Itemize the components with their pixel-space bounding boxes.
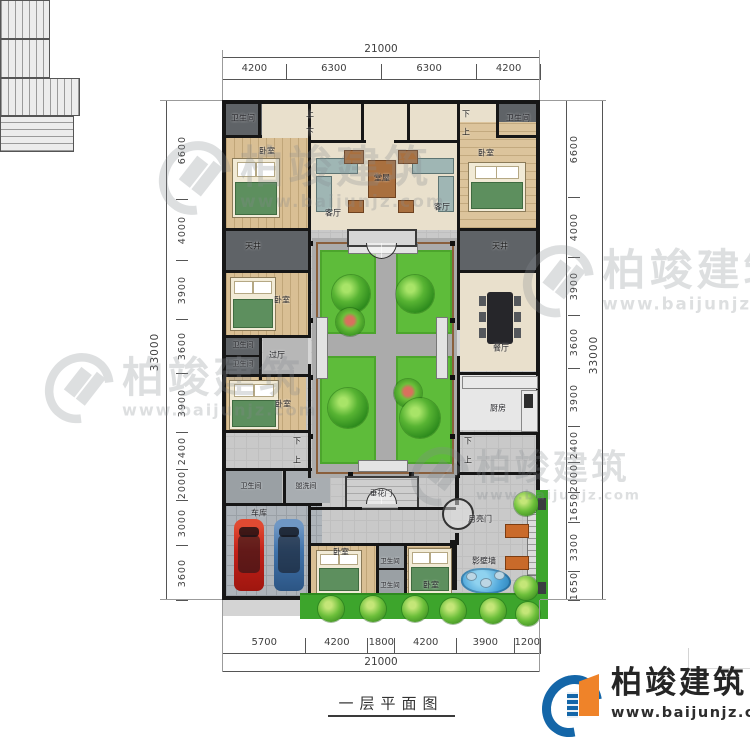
chair-icon: [514, 312, 521, 322]
watermark: 柏竣建筑 www.baijunjz.com: [412, 446, 641, 507]
column-icon: [450, 241, 455, 246]
car-red-icon: [234, 519, 264, 591]
chair-icon: [479, 328, 486, 338]
extension-line: [539, 600, 540, 672]
room-label-wc-bottom-left: 卫生间: [241, 481, 262, 491]
room-label-wc-mid-1: 卫生间: [233, 340, 254, 350]
dim-segment: 3300: [568, 523, 580, 572]
dim-segment: 2400: [176, 433, 188, 470]
chair-icon: [479, 296, 486, 306]
dim-segment: 4200: [477, 64, 541, 79]
dim-segment: 5700: [223, 638, 306, 653]
extension-line: [540, 599, 606, 600]
column-icon: [450, 318, 455, 323]
watermark-url: www.baijunjz.com: [602, 296, 750, 313]
stairs-down-label: 下: [306, 127, 314, 138]
stairs-up-label: 上: [462, 127, 470, 138]
drawing-title: 一层平面图: [338, 693, 443, 714]
watermark-url: www.baijunjz.com: [122, 403, 317, 419]
wall: [361, 100, 364, 143]
extension-line: [222, 50, 223, 100]
central-courtyard: [312, 238, 458, 478]
flower-tree-icon: [336, 308, 364, 336]
room-label-wc-top-left: 卫生间: [231, 113, 255, 124]
stairs-top-left: [0, 0, 50, 39]
wall: [407, 100, 410, 143]
stairs-up-label: 上: [306, 109, 314, 120]
wall: [457, 228, 540, 231]
stairs-down-label: 下: [462, 109, 470, 120]
wall: [376, 568, 407, 570]
watermark-name: 柏竣建筑: [240, 146, 446, 190]
dim-segment: 6300: [287, 64, 382, 79]
wall: [310, 543, 456, 546]
dim-line: [222, 671, 540, 672]
dim-total-right: 33000: [588, 336, 600, 374]
stove-icon: [524, 394, 533, 408]
room-label-bedroom-b1: 卧室: [333, 547, 349, 558]
watermark-name: 柏竣建筑: [602, 249, 750, 292]
room-label-bedroom-mid-left: 卧室: [274, 295, 290, 306]
dim-segments-right: 6600400039003600390024002000165033001650: [568, 100, 580, 601]
wall: [222, 270, 311, 273]
shrub-icon: [402, 596, 428, 622]
room-label-moon-gate: 月亮门: [468, 514, 492, 525]
car-blue-icon: [274, 519, 304, 591]
watermark-url: www.baijunjz.com: [476, 489, 641, 503]
extension-line: [222, 600, 223, 672]
room-label-wc-b1: 卫生间: [380, 555, 400, 565]
lightwell-left-room: [226, 230, 310, 270]
extension-line: [539, 50, 540, 100]
dim-segment: 1800: [368, 638, 395, 653]
shrub-icon: [360, 596, 386, 622]
dim-line: [222, 57, 540, 58]
room-label-washroom: 盥洗间: [296, 481, 317, 491]
brand-name: 柏竣建筑: [611, 668, 750, 699]
room-label-wc-b2: 卫生间: [380, 579, 400, 589]
room-label-lightwell-left: 天井: [245, 241, 261, 252]
wall: [496, 100, 499, 138]
shrub-icon: [514, 576, 538, 600]
dim-segment: 1650: [568, 572, 580, 601]
driveway-apron: [222, 600, 300, 616]
watermark-name: 柏竣建筑: [476, 450, 641, 485]
dim-line: [602, 100, 603, 600]
tree-icon: [400, 398, 440, 438]
dim-total-top: 21000: [364, 43, 397, 55]
watermark-name: 柏竣建筑: [122, 357, 317, 399]
dim-segment: 3900: [457, 638, 514, 653]
watermark-logo-icon: [508, 231, 608, 332]
bench-icon: [436, 317, 448, 379]
wall: [222, 228, 311, 231]
stairs-low-right: [0, 116, 74, 152]
room-label-dining: 餐厅: [493, 343, 509, 354]
stairs-down-label: 下: [464, 436, 472, 447]
rock-icon: [466, 572, 477, 581]
dim-segment: 4200: [395, 638, 457, 653]
room-label-garage: 车库: [251, 508, 267, 519]
dim-segment: 4200: [306, 638, 368, 653]
dim-segment: 6300: [382, 64, 477, 79]
kitchen-counter: [462, 376, 538, 389]
room-label-bedroom-b2: 卧室: [423, 580, 439, 591]
shrub-icon: [516, 602, 540, 626]
wall: [222, 468, 312, 471]
stairs-top-right: [0, 39, 50, 78]
room-label-wc-top-right: 卫生间: [506, 113, 530, 124]
dim-segment: 3600: [176, 546, 188, 601]
brand-logo-icon: [543, 668, 603, 730]
dim-segment: 1200: [515, 638, 541, 653]
room-label-lightwell-right: 天井: [492, 241, 508, 252]
rock-icon: [494, 571, 505, 580]
wall: [457, 100, 460, 230]
room-label-kitchen: 厨房: [490, 403, 506, 414]
tree-icon: [328, 388, 368, 428]
dim-total-bottom: 21000: [364, 656, 397, 668]
bench-icon: [505, 556, 529, 570]
wall: [222, 335, 311, 338]
watermark: 柏竣建筑 www.baijunjz.com: [160, 140, 446, 216]
bed-icon: [230, 277, 276, 331]
bench-icon: [358, 460, 408, 472]
bench-icon: [505, 524, 529, 538]
dim-segment: 3000: [176, 501, 188, 547]
wall: [222, 430, 311, 433]
wall: [222, 100, 540, 104]
column-icon: [450, 375, 455, 380]
rock-icon: [480, 578, 492, 588]
watermark: 柏竣建筑 www.baijunjz.com: [524, 244, 750, 318]
floor-plan-sheet: 卫生间 卧室 客厅 堂屋 客厅 卧室 卫生间 天井 卧室 卫生间 卫生间 过厅 …: [0, 0, 750, 750]
brand-logo: 柏竣建筑 www.baijunjz.com: [543, 668, 750, 730]
brand-url: www.baijunjz.com: [611, 705, 750, 721]
bed-icon: [468, 162, 526, 212]
wall: [310, 507, 362, 510]
extension-line: [160, 100, 222, 101]
dim-segments-bottom: 570042001800420039001200: [222, 638, 541, 654]
wall: [283, 468, 286, 505]
dim-segment: 6600: [568, 101, 580, 198]
chair-icon: [479, 312, 486, 322]
dim-line: [566, 100, 567, 600]
tree-icon: [396, 275, 434, 313]
wall: [222, 135, 262, 138]
chair-icon: [514, 328, 521, 338]
shrub-icon: [318, 596, 344, 622]
stairs-up-label: 上: [293, 455, 301, 466]
watermark-logo-icon: [399, 435, 481, 517]
extension-line: [160, 599, 222, 600]
room-label-bedroom-top-right: 卧室: [478, 148, 494, 159]
stairs-low-left: [0, 78, 80, 116]
dim-segment: 2000: [176, 470, 188, 501]
dim-segment: 3600: [568, 316, 580, 370]
watermark-url: www.baijunjz.com: [240, 194, 446, 211]
wall: [308, 505, 311, 596]
stairs-down-label: 下: [293, 436, 301, 447]
wall: [258, 100, 261, 138]
wall: [222, 503, 322, 506]
wall: [498, 135, 540, 138]
title-underline: [328, 715, 455, 717]
dim-segment: 3900: [568, 369, 580, 427]
wall: [457, 372, 540, 375]
dining-table-icon: [487, 292, 513, 344]
shrub-icon: [480, 598, 506, 624]
room-label-flower-gate: 垂花门: [370, 488, 393, 499]
door-opening: [457, 330, 460, 356]
ac-unit-icon: [538, 582, 546, 594]
column-icon: [450, 434, 455, 439]
watermark-logo-icon: [31, 339, 128, 437]
watermark-logo-icon: [144, 127, 246, 230]
shrub-icon: [440, 598, 466, 624]
dim-segment: 3900: [176, 261, 188, 320]
dim-segments-top: 4200630063004200: [222, 64, 541, 80]
bench-icon: [316, 317, 328, 379]
extension-line: [540, 100, 606, 101]
watermark: 柏竣建筑 www.baijunjz.com: [46, 352, 317, 424]
chair-icon: [514, 296, 521, 306]
dim-segment: 4200: [223, 64, 287, 79]
room-label-screen-wall: 影壁墙: [472, 556, 496, 567]
